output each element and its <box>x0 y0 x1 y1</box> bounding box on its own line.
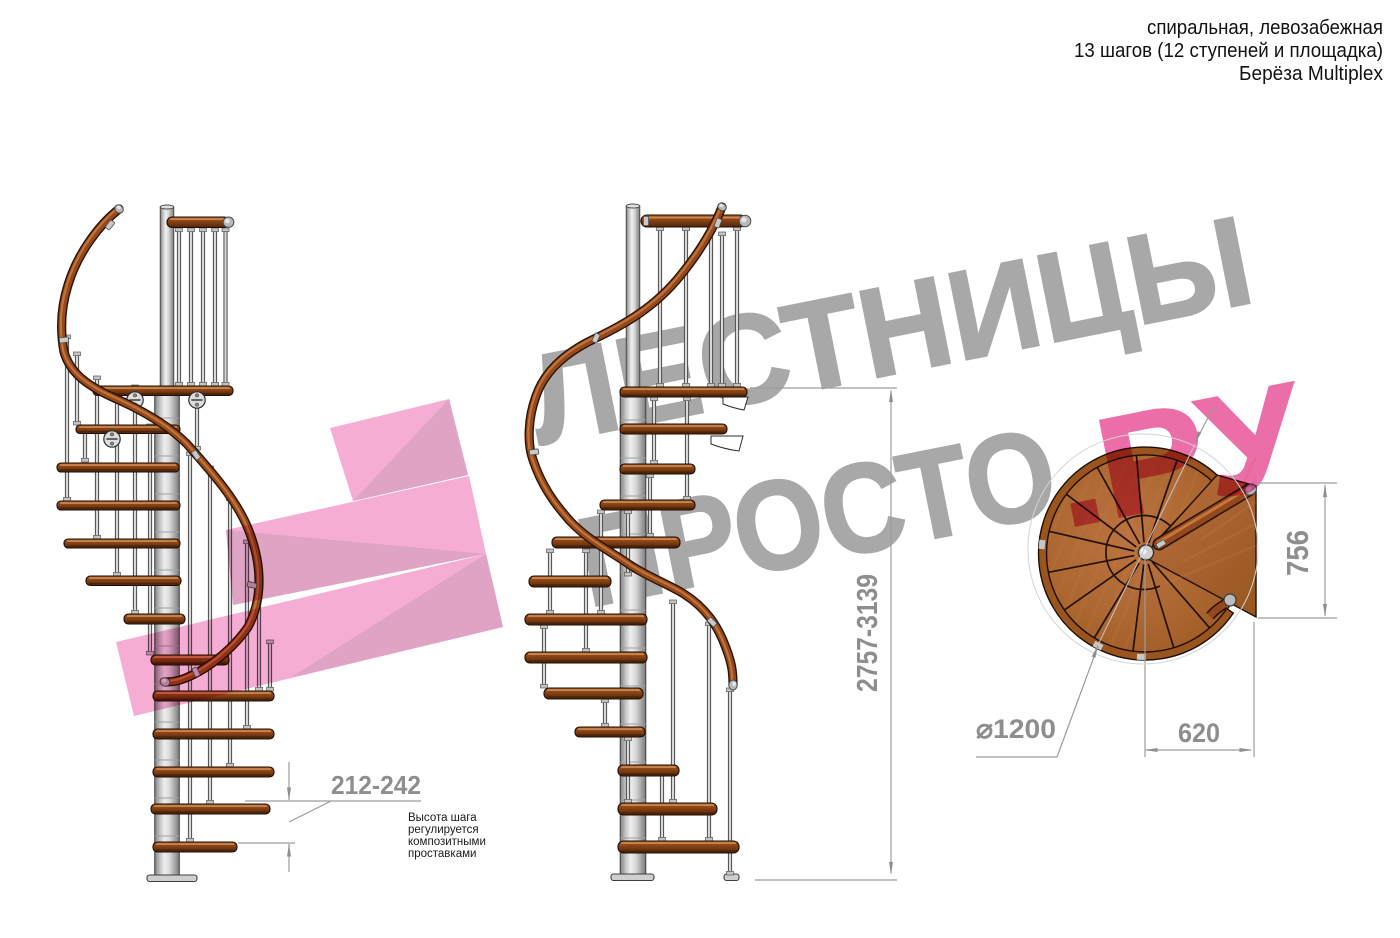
svg-text:Берёза Multiplex: Берёза Multiplex <box>1239 63 1383 85</box>
svg-text:композитными: композитными <box>408 836 486 848</box>
svg-text:⌀1200: ⌀1200 <box>976 714 1056 744</box>
svg-text:спиральная, левозабежная: спиральная, левозабежная <box>1147 17 1383 39</box>
svg-text:13 шагов (12 ступеней и площад: 13 шагов (12 ступеней и площадка) <box>1074 40 1383 62</box>
svg-text:2757-3139: 2757-3139 <box>852 574 884 692</box>
svg-text:проставками: проставками <box>408 848 476 860</box>
svg-text:регулируется: регулируется <box>408 824 479 836</box>
svg-text:756: 756 <box>1280 530 1315 576</box>
svg-text:212-242: 212-242 <box>331 770 421 800</box>
svg-text:620: 620 <box>1178 718 1220 748</box>
svg-text:Высота шага: Высота шага <box>408 812 477 824</box>
